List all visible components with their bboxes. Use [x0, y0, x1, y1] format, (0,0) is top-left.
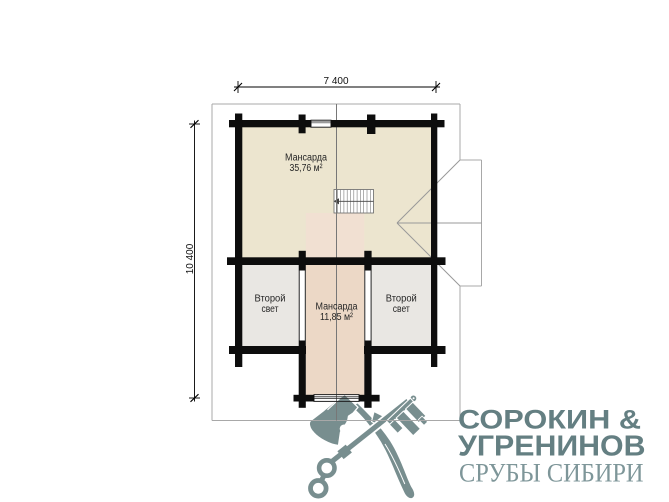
- svg-text:11,85 м²: 11,85 м²: [320, 312, 354, 323]
- svg-text:свет: свет: [262, 304, 279, 315]
- svg-text:10 400: 10 400: [185, 243, 196, 274]
- svg-text:7 400: 7 400: [323, 76, 348, 87]
- svg-text:СРУБЫ СИБИРИ: СРУБЫ СИБИРИ: [459, 459, 644, 488]
- svg-text:Второй: Второй: [386, 294, 417, 305]
- svg-text:свет: свет: [393, 304, 410, 315]
- svg-text:Второй: Второй: [255, 294, 286, 305]
- svg-text:35,76 м²: 35,76 м²: [290, 163, 324, 174]
